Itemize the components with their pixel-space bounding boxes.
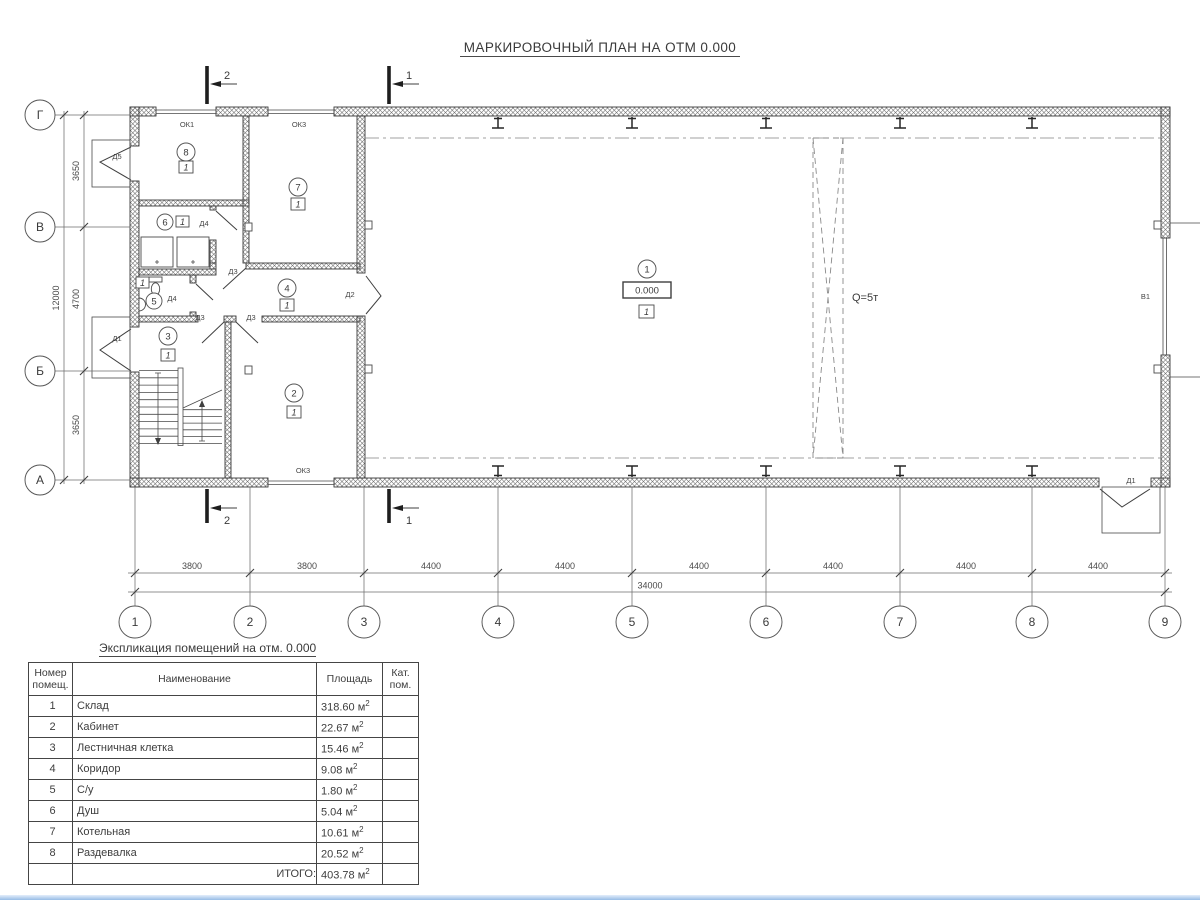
col-header-area: Площадь [317, 663, 383, 696]
axis-label: Г [37, 108, 44, 122]
door-label: Д3 [246, 313, 255, 322]
area-value: 22.67 [321, 722, 349, 734]
gate-label: В1 [1141, 292, 1150, 301]
section-mark-label: 1 [406, 70, 412, 82]
room-area-cell: 5.04 м2 [317, 801, 383, 822]
dim-label: 3800 [182, 561, 202, 571]
category-mark: 1 [180, 217, 185, 227]
table-row: 6 Душ 5.04 м2 [29, 801, 419, 822]
axis-label: А [36, 473, 44, 487]
table-row: 2 Кабинет 22.67 м2 [29, 717, 419, 738]
room-number: 5 [151, 297, 156, 308]
schedule-caption: Экспликация помещений на отм. 0.000 [99, 641, 316, 657]
area-unit: м [345, 806, 353, 818]
room-name-cell: Склад [73, 696, 317, 717]
dim-label: 4400 [555, 561, 575, 571]
room-cat-cell [383, 843, 419, 864]
room-area-cell: 9.08 м2 [317, 759, 383, 780]
room-num-cell: 1 [29, 696, 73, 717]
ramp-lines [1170, 223, 1200, 377]
drawing-sheet: МАРКИРОВОЧНЫЙ ПЛАН НА ОТМ 0.000 [0, 0, 1200, 900]
room-name-cell: Кабинет [73, 717, 317, 738]
door-leaves [100, 147, 1150, 507]
room-num-cell: 2 [29, 717, 73, 738]
door-label: Д3 [228, 267, 237, 276]
dim-label: 4400 [689, 561, 709, 571]
section-marks: 2 1 2 1 [207, 66, 419, 527]
axis-label: В [36, 220, 44, 234]
axis-label: 9 [1162, 615, 1169, 629]
door-label: Д4 [167, 294, 176, 303]
area-unit-sup: 2 [359, 720, 363, 729]
total-empty-cell [29, 864, 73, 885]
stair-arrow-down [155, 373, 161, 438]
room-name-cell: Коридор [73, 759, 317, 780]
crane-runway [365, 138, 1161, 458]
area-value: 20.52 [321, 848, 349, 860]
axis-label: 1 [132, 615, 139, 629]
dim-label: 12000 [51, 285, 61, 310]
table-row: 5 С/у 1.80 м2 [29, 780, 419, 801]
room-cat-cell [383, 738, 419, 759]
area-value: 403.78 [321, 869, 355, 881]
area-value: 1.80 [321, 785, 342, 797]
table-total-row: ИТОГО: 403.78 м2 [29, 864, 419, 885]
room-cat-cell [383, 801, 419, 822]
area-unit-sup: 2 [365, 699, 369, 708]
area-value: 10.61 [321, 827, 349, 839]
total-label-cell: ИТОГО: [73, 864, 317, 885]
room-num-cell: 3 [29, 738, 73, 759]
dim-label: 3650 [71, 161, 81, 181]
col-header-name: Наименование [73, 663, 317, 696]
room-num-cell: 8 [29, 843, 73, 864]
axis-label: 7 [897, 615, 904, 629]
room-number: 2 [291, 389, 296, 400]
category-mark: 1 [284, 301, 289, 311]
category-mark: 1 [644, 307, 649, 317]
table-row: 1 Склад 318.60 м2 [29, 696, 419, 717]
section-mark-label: 2 [224, 515, 230, 527]
section-mark-label: 2 [224, 70, 230, 82]
room-name-cell: Душ [73, 801, 317, 822]
dim-label: 4700 [71, 289, 81, 309]
elevation-mark: 0.000 [635, 286, 659, 297]
dim-label: 4400 [956, 561, 976, 571]
table-header-row: Номер помещ. Наименование Площадь Кат. п… [29, 663, 419, 696]
category-mark: 1 [291, 408, 296, 418]
room-cat-cell [383, 864, 419, 885]
room-number: 4 [284, 284, 289, 295]
section-mark-label: 1 [406, 515, 412, 527]
category-mark: 1 [165, 351, 170, 361]
porches-group [92, 140, 1160, 533]
area-value: 318.60 [321, 701, 355, 713]
dim-label: 4400 [1088, 561, 1108, 571]
room-cat-cell [383, 717, 419, 738]
crane-capacity-label: Q=5т [852, 292, 878, 304]
plan-title-text: МАРКИРОВОЧНЫЙ ПЛАН НА ОТМ 0.000 [460, 40, 740, 57]
opening-labels: ОК1 ОК3 ОК3 Д5 Д1 Д4 Д3 Д4 Д3 Д3 Д2 Д1 [112, 120, 1135, 485]
axis-label: 3 [361, 615, 368, 629]
category-mark: 1 [183, 163, 188, 173]
axis-label: Б [36, 364, 44, 378]
area-unit-sup: 2 [359, 846, 363, 855]
col-header-number: Номер помещ. [29, 663, 73, 696]
dim-label: 34000 [637, 581, 662, 591]
room-number: 8 [183, 148, 188, 159]
room-num-cell: 6 [29, 801, 73, 822]
room-name-cell: Котельная [73, 822, 317, 843]
axis-label: 8 [1029, 615, 1036, 629]
table-row: 3 Лестничная клетка 15.46 м2 [29, 738, 419, 759]
stair-arrow-up [199, 407, 205, 441]
room-cat-cell [383, 780, 419, 801]
window-label: ОК3 [292, 120, 306, 129]
col-header-category: Кат. пом. [383, 663, 419, 696]
room-cat-cell [383, 696, 419, 717]
axis-label: 6 [763, 615, 770, 629]
area-unit-sup: 2 [353, 804, 357, 813]
table-row: 8 Раздевалка 20.52 м2 [29, 843, 419, 864]
pilaster-columns [245, 221, 1161, 374]
axis-label: 2 [247, 615, 254, 629]
area-unit-sup: 2 [353, 762, 357, 771]
room-num-cell: 7 [29, 822, 73, 843]
category-mark: 1 [140, 278, 145, 288]
room-area-cell: 22.67 м2 [317, 717, 383, 738]
window-label: ОК3 [296, 466, 310, 475]
toilet-tank [149, 277, 162, 282]
table-row: 4 Коридор 9.08 м2 [29, 759, 419, 780]
dim-label: 4400 [421, 561, 441, 571]
category-mark: 1 [295, 200, 300, 210]
room-marks: 8 1 7 1 6 1 5 1 4 1 3 1 2 1 1 0.000 1 Q=… [136, 143, 1150, 418]
page-title: МАРКИРОВОЧНЫЙ ПЛАН НА ОТМ 0.000 [0, 39, 1200, 57]
area-unit-sup: 2 [365, 867, 369, 876]
area-unit: м [345, 764, 353, 776]
dim-label: 3800 [297, 561, 317, 571]
room-name-cell: Раздевалка [73, 843, 317, 864]
area-unit-sup: 2 [359, 741, 363, 750]
room-number: 1 [644, 265, 649, 276]
room-area-cell: 10.61 м2 [317, 822, 383, 843]
door-label: Д2 [345, 290, 354, 299]
area-value: 15.46 [321, 743, 349, 755]
axis-label: 5 [629, 615, 636, 629]
bottom-dimensions: 3800 3800 4400 4400 4400 4400 4400 4400 … [119, 487, 1181, 638]
area-unit-sup: 2 [353, 783, 357, 792]
sink [139, 298, 146, 311]
room-cat-cell [383, 759, 419, 780]
table-row: 7 Котельная 10.61 м2 [29, 822, 419, 843]
room-number: 6 [162, 218, 167, 229]
stairs [139, 368, 222, 446]
door-label: Д3 [195, 313, 204, 322]
area-value: 5.04 [321, 806, 342, 818]
area-unit: м [345, 785, 353, 797]
dim-label: 3650 [71, 415, 81, 435]
floor-plan-drawing: 8 1 7 1 6 1 5 1 4 1 3 1 2 1 1 0.000 1 Q=… [0, 0, 1200, 645]
steel-columns [492, 117, 1038, 477]
room-cat-cell [383, 822, 419, 843]
window-label: ОК1 [180, 120, 194, 129]
door-label: Д5 [112, 152, 121, 161]
axis-label: 4 [495, 615, 502, 629]
room-area-cell: 15.46 м2 [317, 738, 383, 759]
room-name-cell: С/у [73, 780, 317, 801]
total-area-cell: 403.78 м2 [317, 864, 383, 885]
window-bottom-edge [0, 895, 1200, 900]
room-number: 7 [295, 183, 300, 194]
room-schedule-table: Номер помещ. Наименование Площадь Кат. п… [28, 662, 419, 885]
door-label: Д1 [112, 334, 121, 343]
room-number: 3 [165, 332, 170, 343]
door-label: Д4 [199, 219, 208, 228]
room-name-cell: Лестничная клетка [73, 738, 317, 759]
room-area-cell: 1.80 м2 [317, 780, 383, 801]
dim-label: 4400 [823, 561, 843, 571]
room-num-cell: 5 [29, 780, 73, 801]
door-label: Д1 [1126, 476, 1135, 485]
area-value: 9.08 [321, 764, 342, 776]
room-area-cell: 318.60 м2 [317, 696, 383, 717]
area-unit-sup: 2 [359, 825, 363, 834]
room-area-cell: 20.52 м2 [317, 843, 383, 864]
room-num-cell: 4 [29, 759, 73, 780]
